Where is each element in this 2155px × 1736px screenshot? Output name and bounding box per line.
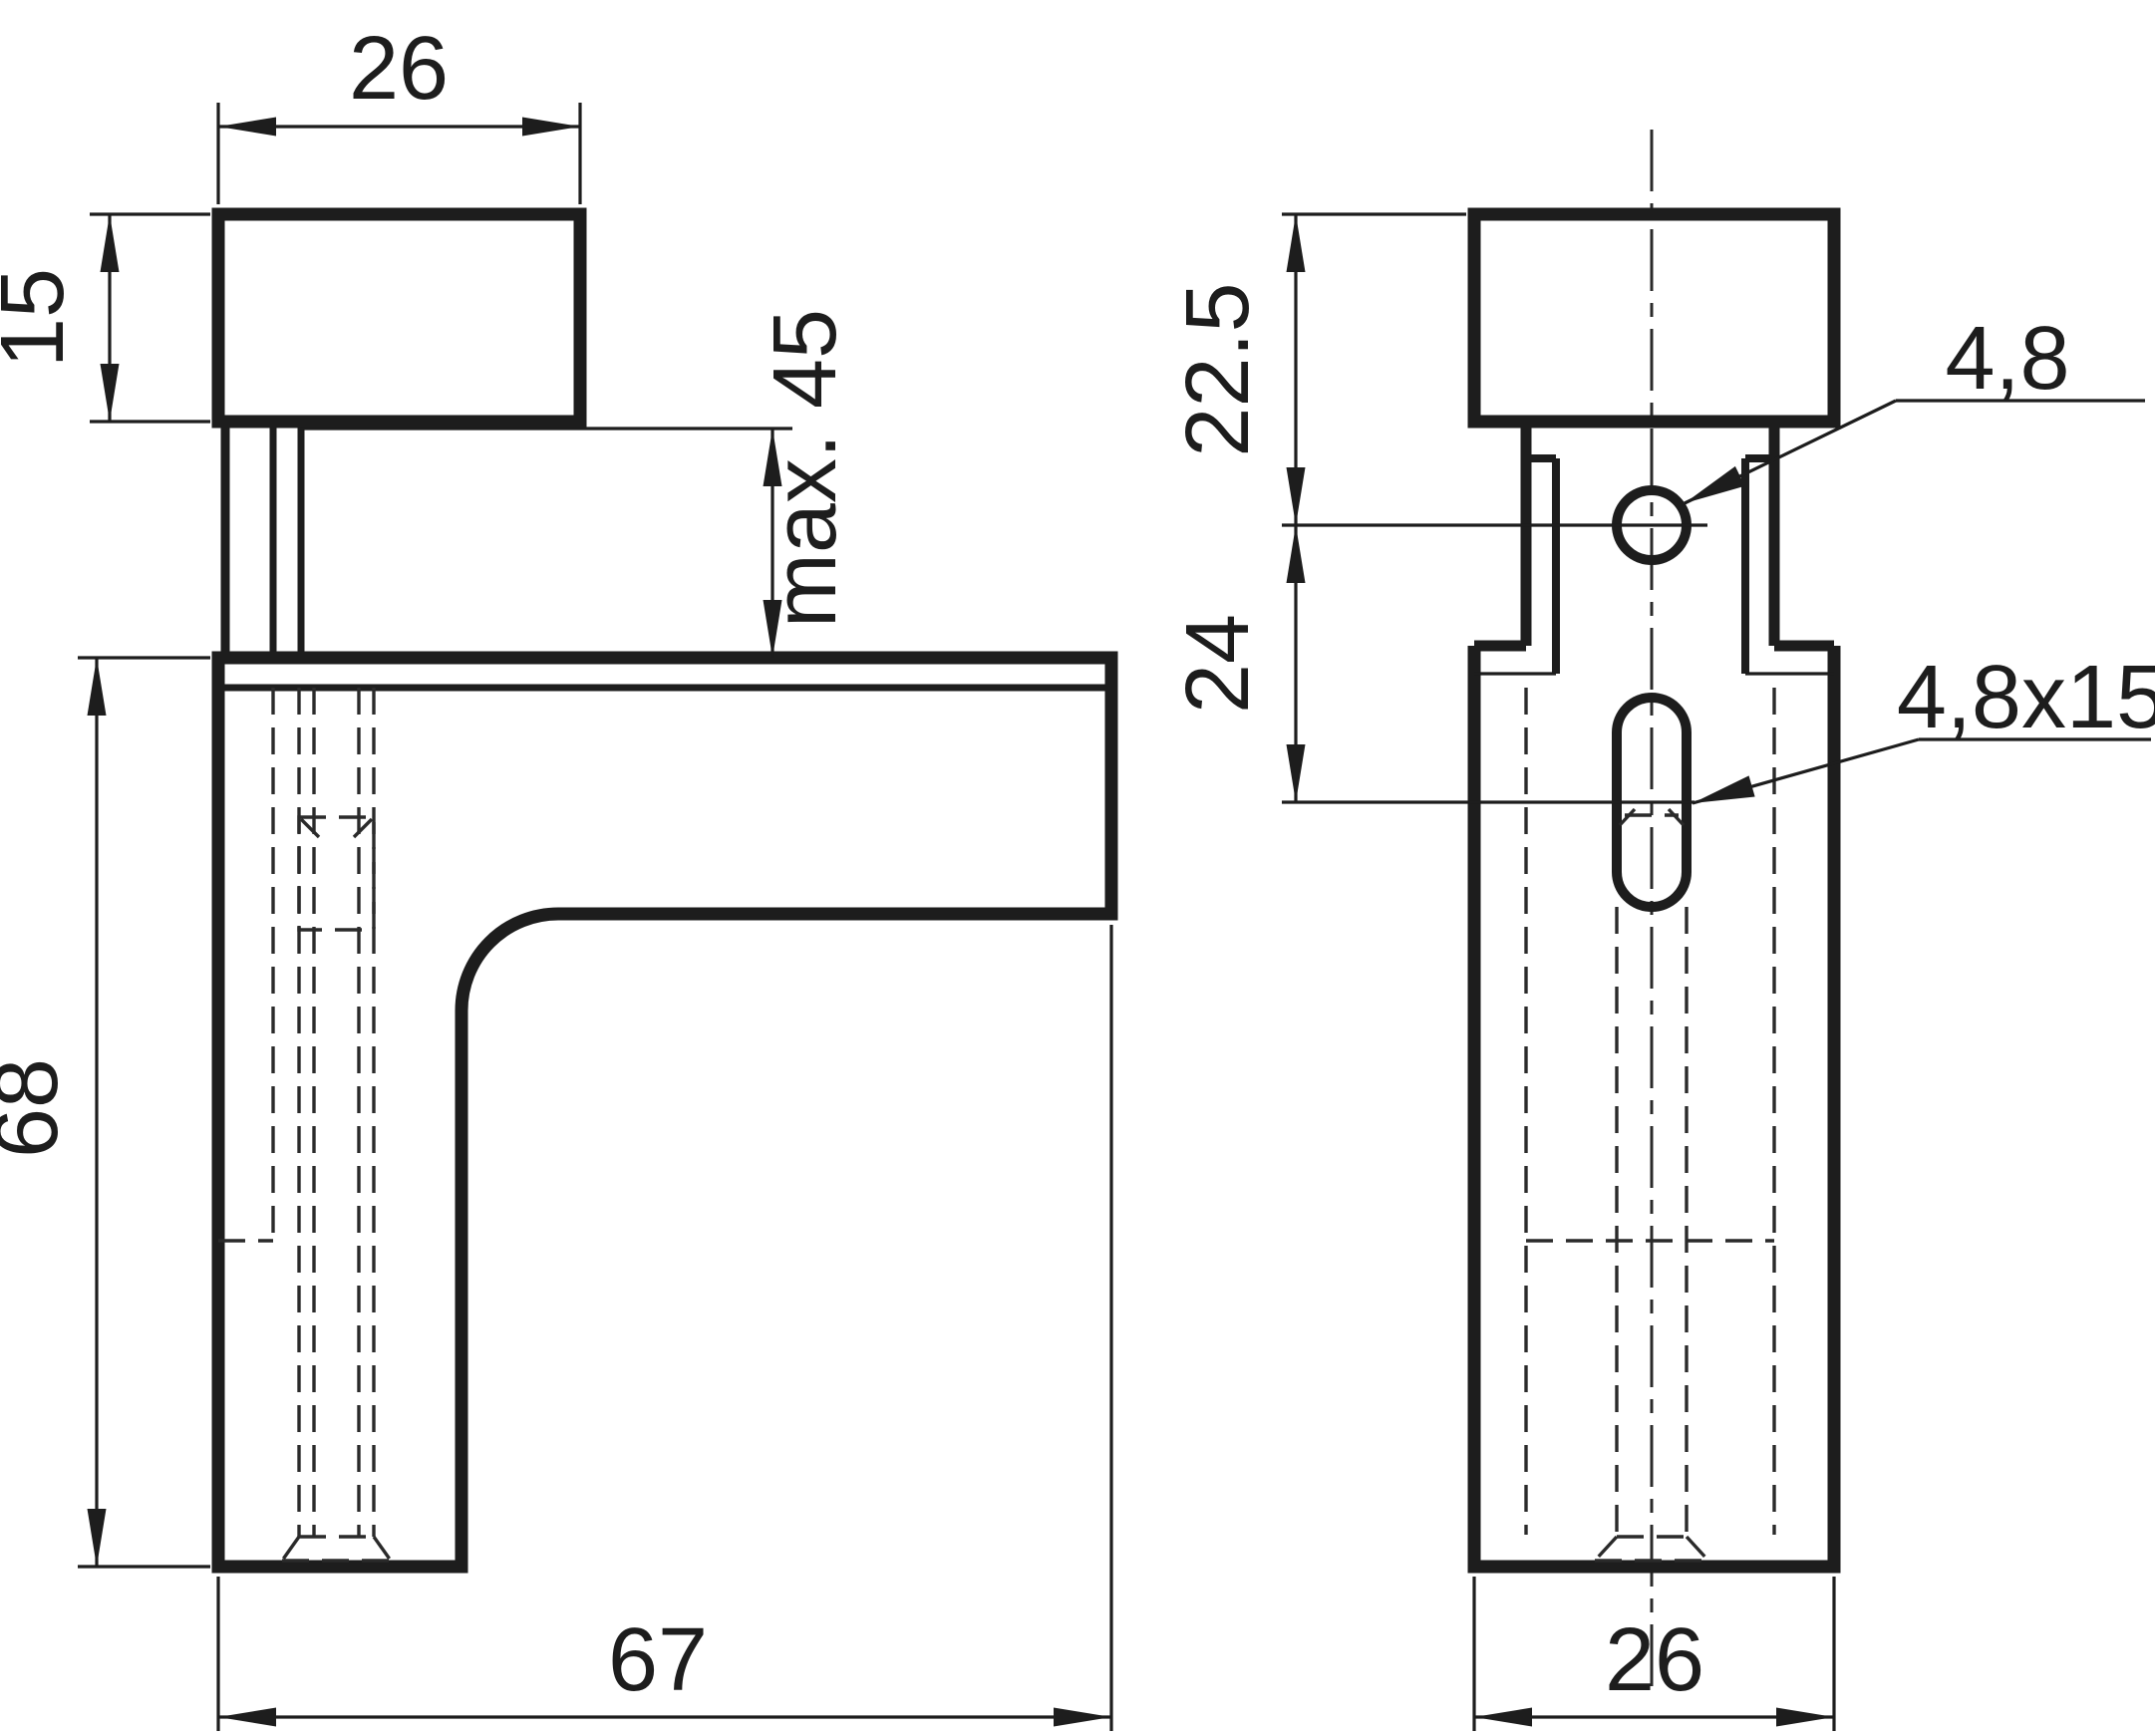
dim-cap-to-hole: 22.5 bbox=[1168, 214, 1707, 525]
leader-hole-diameter: 4,8 bbox=[1680, 309, 2145, 513]
front-cap-outline bbox=[1474, 214, 1834, 422]
dim-body-height: 68 bbox=[0, 658, 210, 1567]
dim-arrow-bottom bbox=[1287, 467, 1306, 525]
side-hidden-lines bbox=[218, 688, 391, 1561]
dim-label-cap-to-hole: 22.5 bbox=[1168, 282, 1268, 456]
label-hole-diameter: 4,8 bbox=[1945, 309, 2069, 409]
dim-arrow-top bbox=[1287, 525, 1306, 583]
side-cap-outline bbox=[218, 214, 580, 422]
dim-arrow-top bbox=[1287, 214, 1306, 272]
dim-arrow-right bbox=[1054, 1708, 1111, 1727]
dim-arrow-bottom bbox=[88, 1509, 107, 1567]
dim-arrow-top bbox=[101, 214, 120, 272]
hidden-countersink-left bbox=[1595, 1537, 1617, 1561]
hidden-nut-chamfer-right bbox=[354, 819, 372, 837]
dim-cap-height: 15 bbox=[0, 214, 210, 422]
dim-arrow-top bbox=[88, 658, 107, 716]
leader-arrow bbox=[1690, 775, 1755, 813]
dim-arm-length: 67 bbox=[218, 925, 1111, 1731]
dim-arrow-right bbox=[1776, 1708, 1834, 1727]
side-body-outline bbox=[218, 658, 1111, 1567]
dim-arrow-left bbox=[218, 118, 276, 137]
hidden-slider-nut bbox=[299, 817, 374, 930]
dim-label-body-width: 26 bbox=[1605, 1610, 1704, 1710]
dim-cap-width: 26 bbox=[218, 19, 580, 204]
dim-label-cap-height: 15 bbox=[0, 268, 83, 368]
hidden-nut-chamfer-left bbox=[301, 819, 319, 837]
dim-arrow-bottom bbox=[1287, 744, 1306, 802]
dim-body-width: 26 bbox=[1474, 1577, 1834, 1731]
dim-arrow-left bbox=[1474, 1708, 1532, 1727]
label-slot-size: 4,8x15 bbox=[1897, 648, 2155, 747]
hidden-countersink-right bbox=[374, 1537, 391, 1561]
dim-arrow-bottom bbox=[101, 364, 120, 422]
front-sleeve-outline bbox=[1474, 646, 1834, 1567]
side-view: 26 15 max. 45 68 bbox=[0, 19, 1111, 1731]
hidden-countersink-left bbox=[282, 1537, 299, 1561]
hidden-countersink-right bbox=[1687, 1537, 1708, 1561]
leader-arrow bbox=[1680, 466, 1744, 513]
dim-arrow-right bbox=[522, 118, 580, 137]
dim-label-cap-width: 26 bbox=[349, 19, 449, 119]
front-view: 22.5 24 4,8 4,8x15 bbox=[1168, 130, 2155, 1731]
dim-label-arm-length: 67 bbox=[608, 1610, 708, 1710]
dim-label-clamp-range: max. 45 bbox=[756, 309, 855, 628]
bracket-drawing: 26 15 max. 45 68 bbox=[0, 0, 2155, 1736]
dim-label-body-height: 68 bbox=[0, 1058, 77, 1158]
drawing-sheet: 26 15 max. 45 68 bbox=[0, 0, 2155, 1736]
dim-label-hole-to-slot: 24 bbox=[1168, 614, 1268, 714]
hidden-seat-chamfer-left bbox=[1620, 809, 1635, 825]
hidden-seat-chamfer-right bbox=[1669, 809, 1684, 825]
dim-arrow-left bbox=[218, 1708, 276, 1727]
